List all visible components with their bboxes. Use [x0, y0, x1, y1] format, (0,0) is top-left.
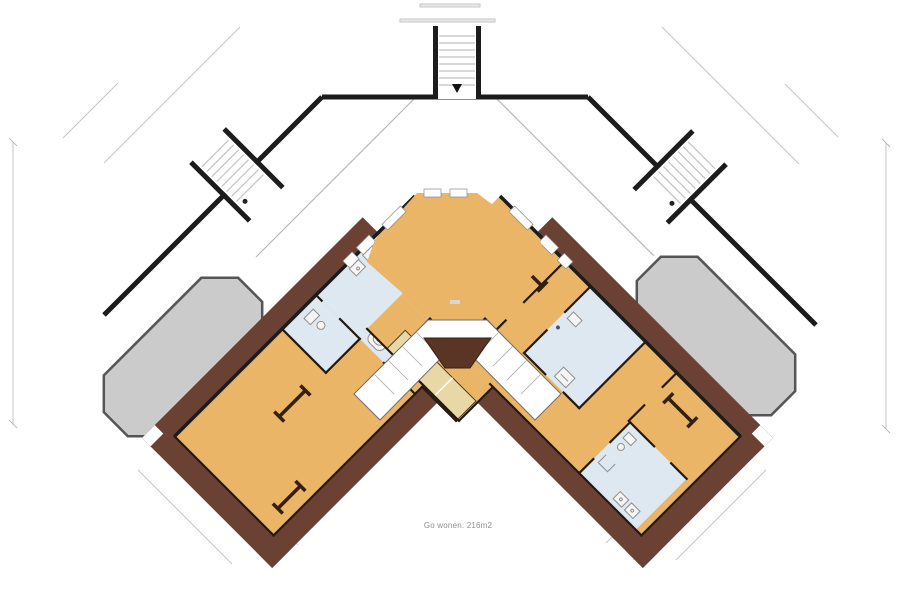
- staircase-left: [189, 127, 284, 222]
- window: [450, 189, 467, 197]
- staircase-right: [632, 129, 727, 224]
- area-caption: Go wonen: 216m2: [424, 521, 493, 530]
- window: [424, 189, 441, 197]
- staircase-top: [433, 26, 481, 99]
- cropped-dimension-text: [420, 4, 480, 7]
- floorplan-page: Go wonen: 216m2: [0, 0, 900, 600]
- floorplan-canvas: Go wonen: 216m2: [0, 0, 900, 600]
- cropped-dimension-text: [400, 19, 495, 22]
- plan-mark: [450, 300, 460, 304]
